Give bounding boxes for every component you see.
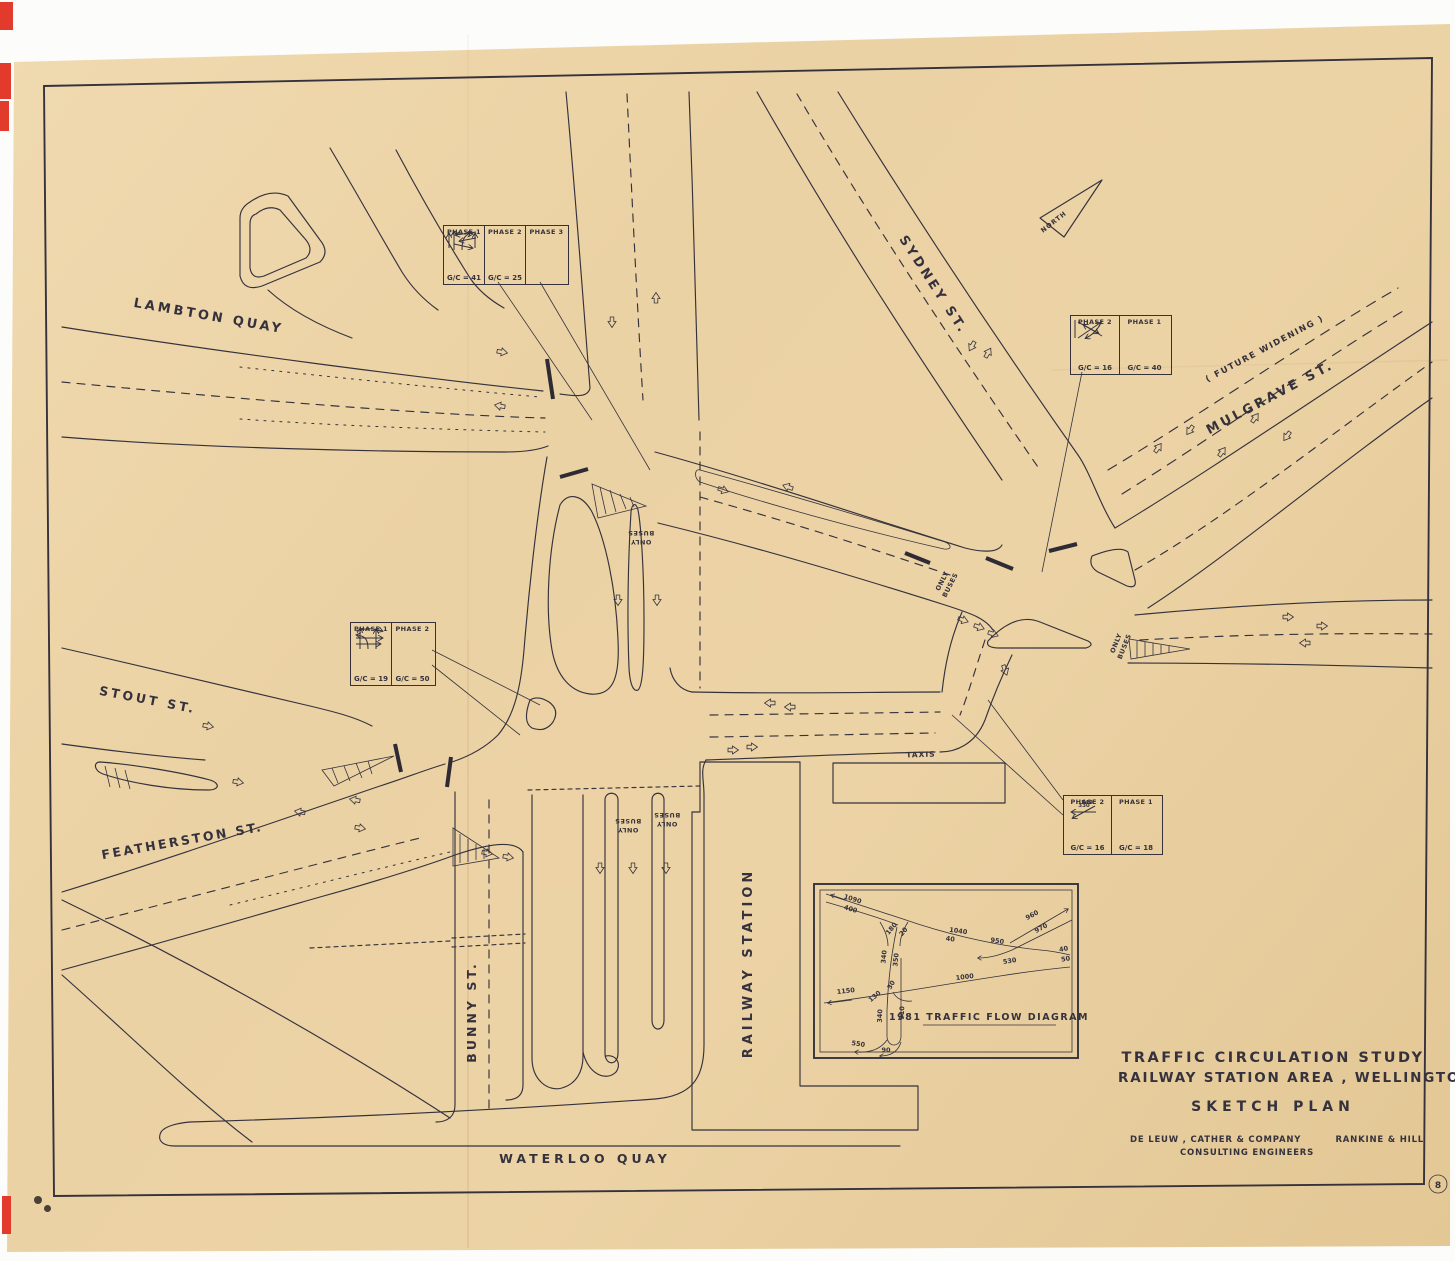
svg-text:350: 350 <box>891 952 900 967</box>
svg-text:950: 950 <box>990 936 1005 946</box>
consultants: DE LEUW , CATHER & COMPANY RANKINE & HIL… <box>1118 1135 1428 1161</box>
phase-cell: PHASE 1 G/C = 40 <box>1120 316 1169 374</box>
svg-text:BUSES: BUSES <box>615 817 642 825</box>
svg-text:400: 400 <box>843 903 859 915</box>
street-label-lambton-quay: LAMBTON QUAY <box>132 296 284 337</box>
only-buses-label: ONLY BUSES <box>933 567 960 598</box>
phase-diagram-station: PHASE 2 540 G/C = 16 PHASE 1 330 G/C = 1… <box>1063 795 1163 855</box>
svg-text:530: 530 <box>1002 956 1017 966</box>
stop-bars <box>395 359 1077 787</box>
svg-text:30: 30 <box>886 979 898 991</box>
svg-text:1150: 1150 <box>836 986 855 996</box>
only-buses-label: ONLY BUSES <box>1107 629 1133 660</box>
svg-text:40: 40 <box>945 934 956 943</box>
north-label: NORTH <box>1039 209 1068 234</box>
svg-text:50: 50 <box>1061 954 1072 964</box>
svg-text:40: 40 <box>1059 944 1070 954</box>
phase-cell: PHASE 1 330 G/C = 18 <box>1112 796 1160 854</box>
inset-title: 1981 TRAFFIC FLOW DIAGRAM <box>889 1012 1089 1023</box>
street-label-bunny-st: BUNNY ST. <box>464 961 479 1062</box>
svg-text:ONLY: ONLY <box>618 826 639 834</box>
bus-lane-labels: ONLY BUSES ONLY BUSES ONLY BUSES ONLY BU… <box>615 529 1133 834</box>
inset-flow-values: 1090 400 1040 40 950 960 970 530 40 50 1… <box>836 893 1071 1054</box>
taxis-label: TAXIS <box>906 749 936 759</box>
lane-arrows <box>202 293 1327 874</box>
sheet-number: 8 <box>1429 1175 1447 1193</box>
svg-text:340: 340 <box>876 1009 884 1023</box>
only-buses-label: ONLY BUSES <box>654 811 681 828</box>
phase-cell: PHASE 2 G/C = 50 <box>392 623 433 685</box>
scanned-sketch-plan: { "title_block": { "line1": "TRAFFIC CIR… <box>0 0 1455 1261</box>
phase-diagram-featherston: PHASE 1 G/C = 19 PHASE 2 G/C = 50 <box>350 622 436 686</box>
svg-text:330: 330 <box>1078 803 1090 809</box>
svg-text:20: 20 <box>897 925 909 937</box>
phase-cell: PHASE 3 <box>526 226 567 284</box>
phase-cell: PHASE 2 G/C = 25 <box>485 226 526 284</box>
only-buses-label: ONLY BUSES <box>615 817 642 834</box>
drawing-title-line3: SKETCH PLAN <box>1118 1099 1428 1115</box>
svg-text:ONLY: ONLY <box>657 820 678 828</box>
street-label-stout-st: STOUT ST. <box>98 683 198 717</box>
only-buses-label: ONLY BUSES <box>628 529 655 546</box>
north-arrow: NORTH <box>1039 180 1102 237</box>
svg-text:550: 550 <box>851 1039 866 1049</box>
svg-text:8: 8 <box>1435 1181 1441 1191</box>
title-block: TRAFFIC CIRCULATION STUDY RAILWAY STATIO… <box>1118 1050 1428 1161</box>
svg-text:340: 340 <box>879 949 888 964</box>
svg-text:90: 90 <box>881 1046 891 1054</box>
street-label-sydney-st: SYDNEY ST. <box>895 233 970 337</box>
traffic-flow-inset: 1090 400 1040 40 950 960 970 530 40 50 1… <box>814 884 1089 1058</box>
svg-text:ONLY: ONLY <box>631 538 652 546</box>
svg-text:960: 960 <box>1024 908 1040 922</box>
phase-diagram-lambton: PHASE 1 G/C = 41 PHASE 2 G/C = 25 PHASE … <box>443 225 569 285</box>
railway-station-label: RAILWAY STATION <box>741 868 756 1059</box>
firm-role: CONSULTING ENGINEERS <box>1180 1148 1314 1158</box>
street-label-featherston-st: FEATHERSTON ST. <box>100 819 264 862</box>
sheet-border <box>44 58 1432 1196</box>
drawing-title-line2: RAILWAY STATION AREA , WELLINGTON <box>1118 1070 1428 1086</box>
firm-name-1: DE LEUW , CATHER & COMPANY <box>1130 1135 1301 1145</box>
firm-name-2: RANKINE & HILL <box>1335 1135 1424 1145</box>
phase-diagram-mulgrave: PHASE 2 G/C = 16 PHASE 1 G/C = 40 <box>1070 315 1172 375</box>
svg-text:BUSES: BUSES <box>654 811 681 819</box>
drawing-title-line1: TRAFFIC CIRCULATION STUDY <box>1118 1050 1428 1066</box>
svg-text:130: 130 <box>867 989 883 1004</box>
svg-text:BUSES: BUSES <box>628 529 655 537</box>
street-label-waterloo-quay: WATERLOO QUAY <box>499 1151 671 1166</box>
